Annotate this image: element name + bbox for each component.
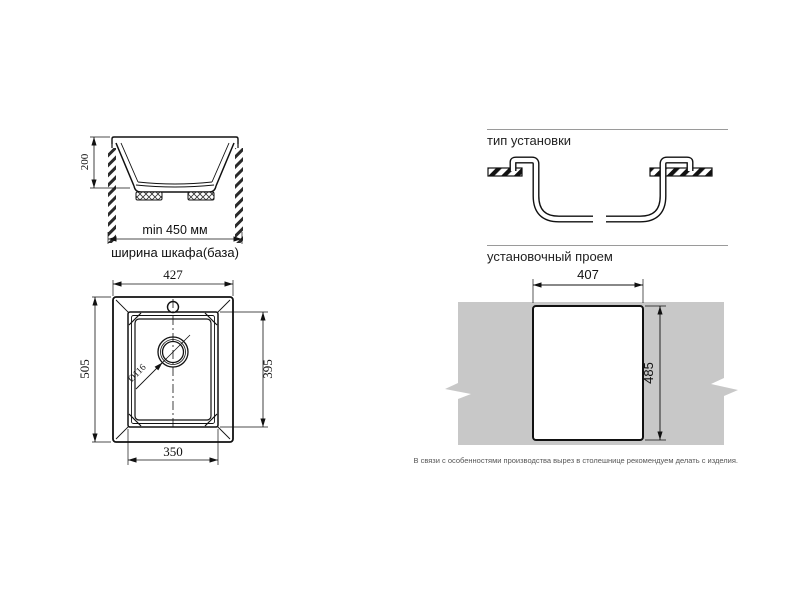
cutout-width-label: 407 [577,267,599,282]
cabinet-wall-right-hatch [235,148,243,243]
bowl-depth-label: 395 [260,359,275,379]
cabinet-section-drawing: 200 min 450 мм ширина шкафа(база) [80,122,280,264]
countertop-left-hatch [488,168,522,176]
overall-width-dimension [113,280,233,296]
technical-drawing-page: 200 min 450 мм ширина шкафа(база) тип ус… [0,0,800,600]
countertop-right-hatch [650,168,712,176]
cutout-header: установочный проем [487,245,728,264]
cabinet-wall-left-hatch [108,148,116,243]
overall-depth-label: 505 [80,359,92,379]
min-width-label: min 450 мм [142,223,207,237]
sink-rim-profile [513,160,690,219]
cabinet-section-figure: 200 min 450 мм ширина шкафа(база) [80,122,280,269]
cutout-height-label: 485 [641,362,656,384]
sink-top-view-figure: Ø116 427 505 395 [80,268,285,508]
cabinet-width-label: ширина шкафа(база) [111,245,239,260]
cutout-opening [533,306,643,440]
installation-type-figure [480,146,730,236]
cutout-title: установочный проем [487,246,728,264]
installation-type-drawing [480,146,730,231]
cutout-figure: 407 485 [440,265,750,465]
overall-width-label: 427 [163,268,183,282]
depth-dim-label: 200 [80,153,91,170]
cutout-drawing: 407 485 [440,265,750,460]
mounting-pad-left [136,192,162,200]
sink-bowl-profile [112,137,238,192]
mounting-pad-right [188,192,214,200]
bowl-width-label: 350 [163,444,183,459]
cutout-width-dimension [533,279,643,303]
production-note: В связи с особенностями производства выр… [413,456,738,465]
sink-top-view-drawing: Ø116 427 505 395 [80,268,285,503]
overall-depth-dimension [92,297,111,442]
